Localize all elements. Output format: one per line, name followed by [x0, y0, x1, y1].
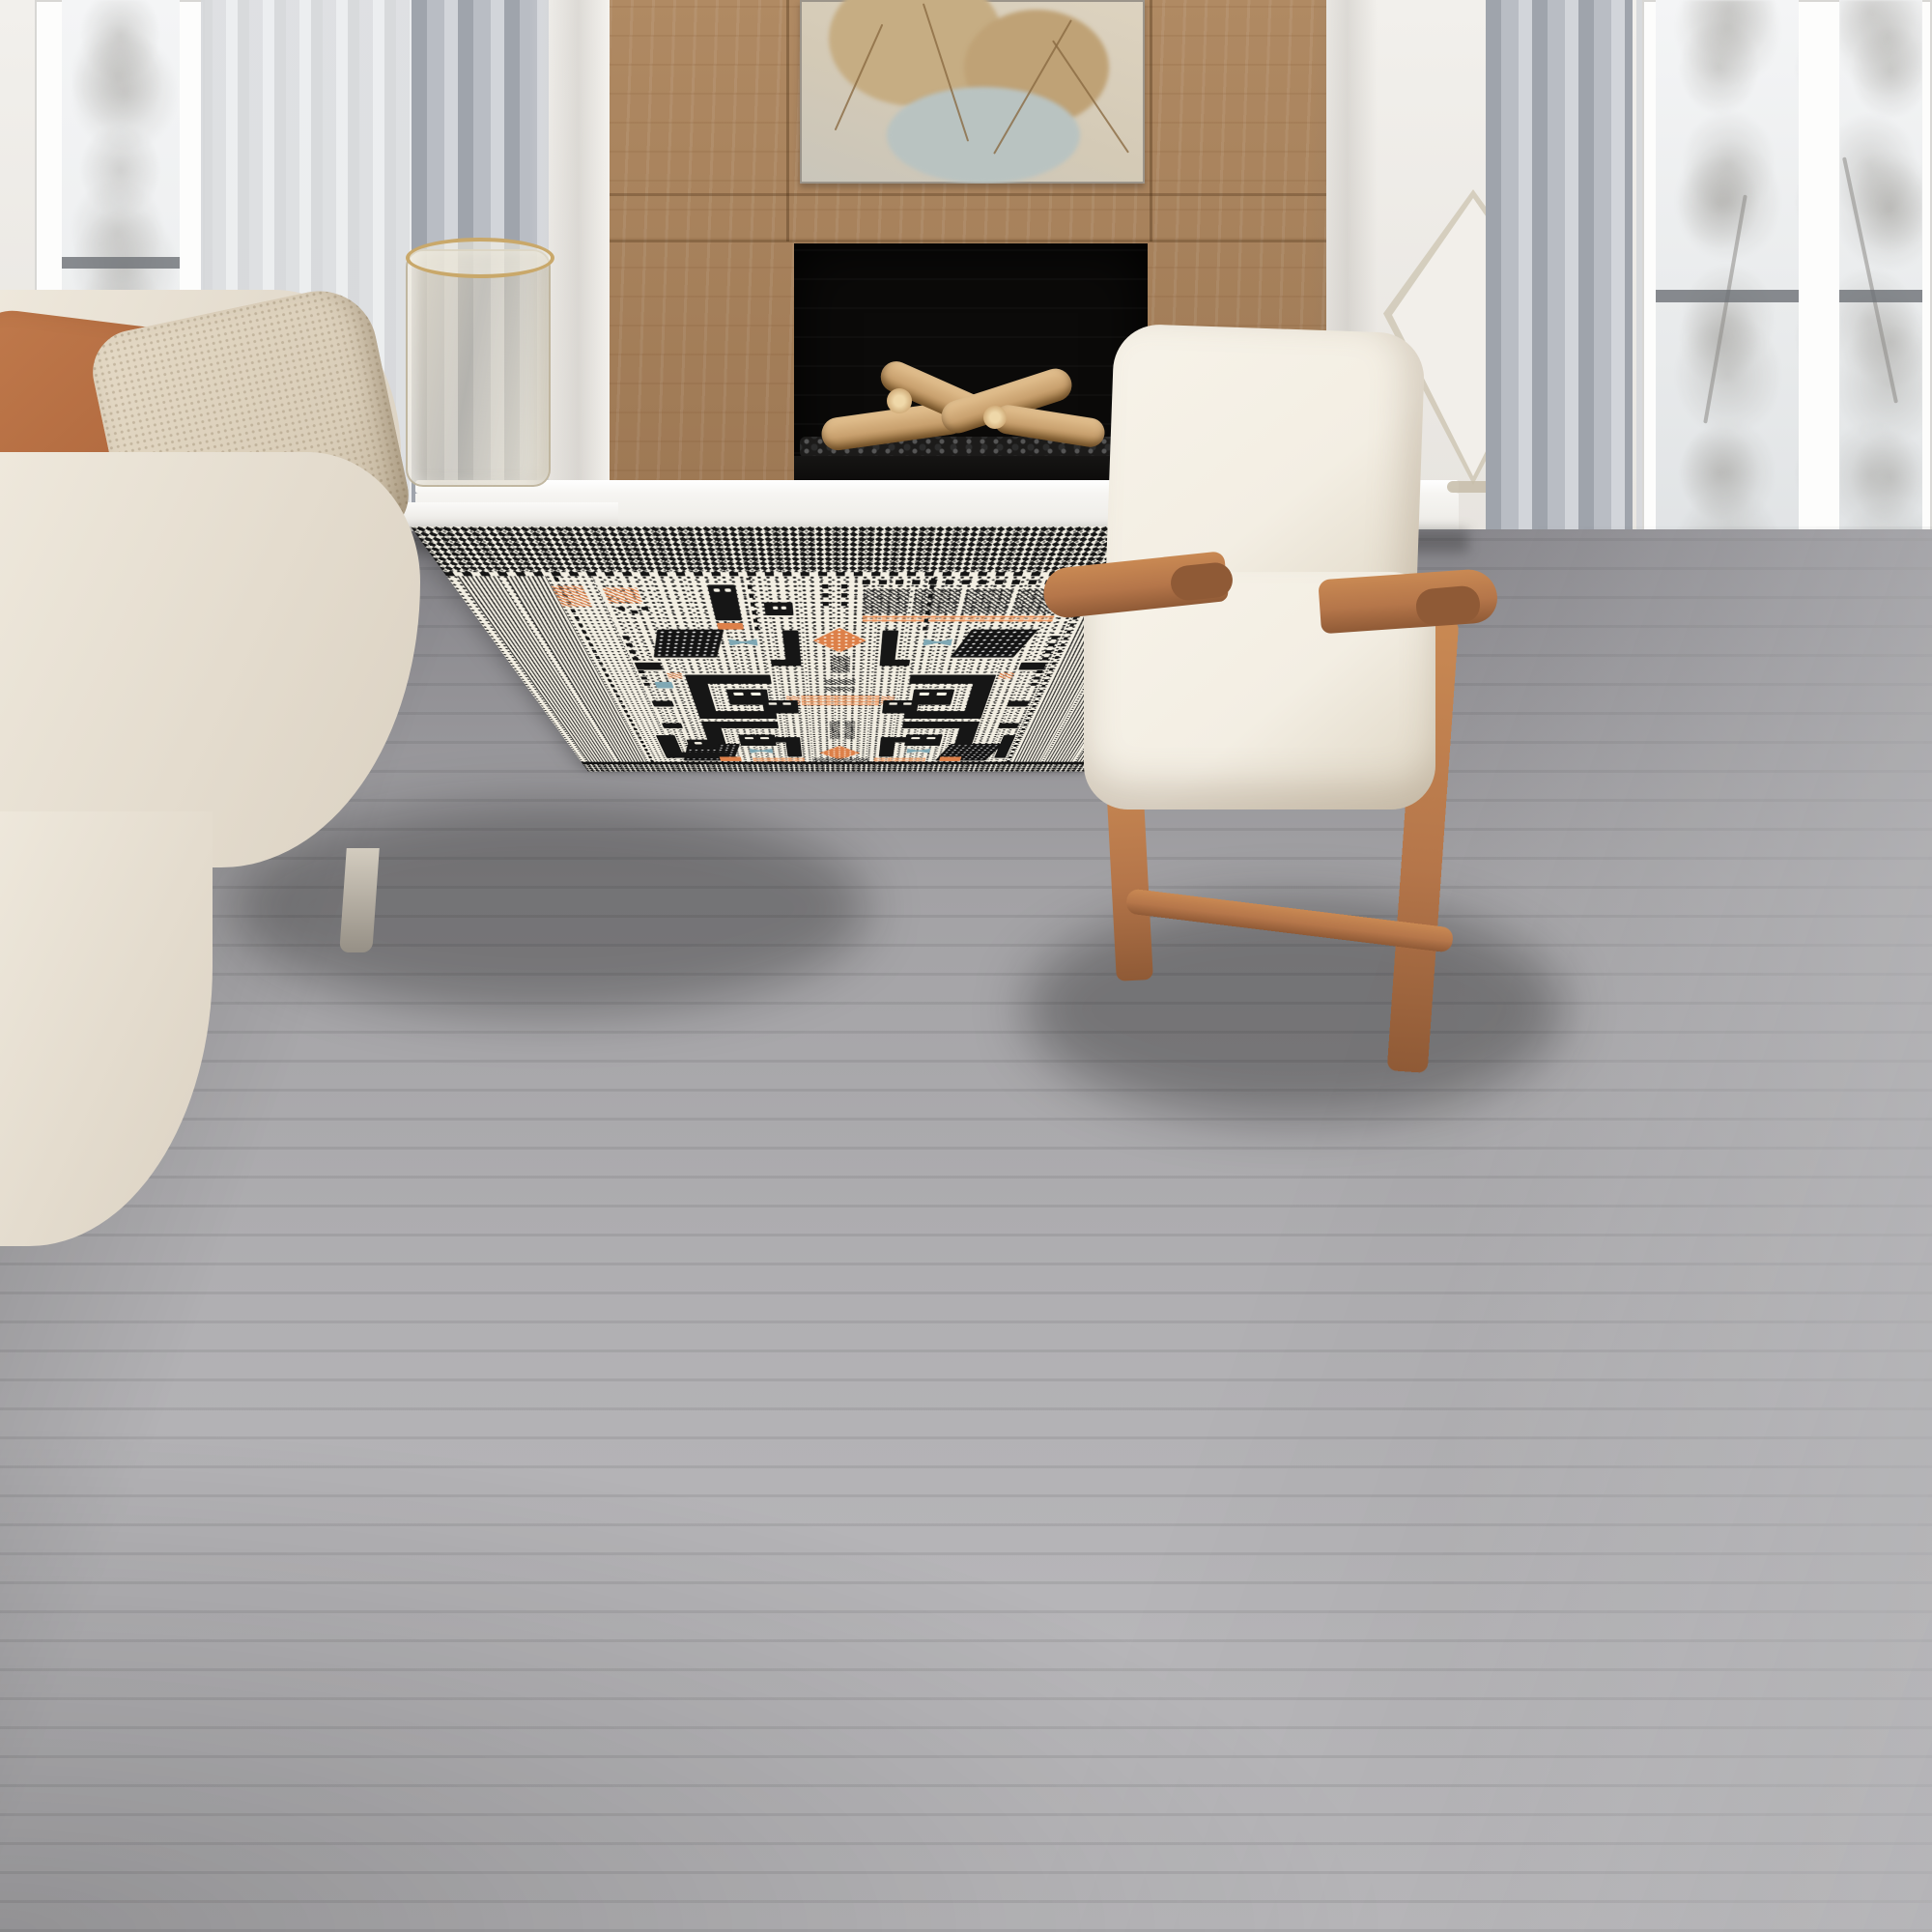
rug-motif-rect — [707, 584, 742, 620]
rug-motif-rect — [685, 674, 772, 683]
rug-motif-inner — [903, 702, 911, 704]
rug-motif-inner — [920, 693, 930, 696]
wood-seam — [610, 240, 1326, 242]
left-window-sash — [62, 257, 180, 269]
rug-motif-rect — [909, 674, 996, 683]
rug-motif-hatchg — [825, 679, 855, 685]
armrest-handle — [1414, 584, 1481, 627]
rug-motif-hatchg — [961, 588, 1014, 613]
rug-motif-inner — [782, 702, 790, 704]
rug-motif-inner — [936, 693, 947, 696]
rug-motif-inner — [751, 693, 761, 696]
rug-motif-inner — [781, 607, 786, 610]
rug-motif-inner — [745, 737, 753, 739]
rug-motif-hatcho — [998, 672, 1014, 678]
rug-motif-dashv — [746, 578, 759, 630]
rug-motif-rect — [687, 740, 720, 750]
rug-motif-rect — [719, 722, 779, 728]
rug-motif-rect — [662, 723, 683, 727]
rug-motif-waveo — [863, 615, 1055, 622]
rug-motif-hatchg — [831, 656, 850, 672]
rug-motif-rect — [617, 607, 625, 611]
rug-motif-inner — [911, 737, 920, 739]
rug-motif-diamb — [654, 630, 724, 658]
rug-motif-inner — [926, 737, 935, 739]
wood-seam — [610, 193, 1326, 196]
rug-motif-rect — [631, 611, 639, 614]
right-window-sash — [1839, 290, 1922, 302]
rug-motif-hatchg — [912, 588, 962, 613]
glass-hurricane-vase — [406, 249, 551, 487]
rug-motif-hatchg — [863, 588, 910, 613]
rug-motif-hatcho — [667, 672, 683, 678]
rug-motif-rect — [774, 737, 785, 742]
art-blob-blue — [887, 87, 1080, 184]
right-window-sash — [1656, 290, 1799, 302]
rug-motif-bow — [750, 749, 774, 753]
rug-motif-inner — [733, 693, 744, 696]
rug-motif-bow — [728, 639, 757, 645]
log-end — [983, 406, 1007, 429]
rug-motif-rect — [882, 700, 919, 714]
rug-motif-rect — [879, 737, 896, 756]
rug-motif-rect — [880, 660, 911, 666]
firebox-plinth — [794, 456, 1148, 483]
rug-motif-bow — [923, 639, 952, 645]
wood-seam — [786, 0, 789, 241]
rug-motif-rusto — [939, 756, 961, 761]
log-end — [887, 388, 912, 413]
abstract-map-artwork — [800, 0, 1145, 184]
rug-motif-inner — [890, 702, 897, 704]
rug-motif-inner — [760, 737, 769, 739]
rug-motif-rusto — [717, 623, 744, 630]
rug-motif-bow — [907, 749, 931, 753]
rug-motif-dashv — [822, 580, 829, 606]
rug-motif-diamb — [951, 630, 1039, 658]
living-room-photo — [0, 0, 1932, 1932]
rug-motif-diamo — [812, 628, 867, 652]
rug-motif-rect — [762, 700, 799, 714]
firebox — [794, 243, 1148, 483]
rug-motif-hatcho — [602, 587, 642, 603]
wall-crease-left — [541, 0, 609, 541]
rug-motif-inner — [769, 702, 777, 704]
rug-motif-rect — [771, 660, 802, 666]
rug-motif-rect — [902, 722, 962, 728]
rug-motif-rect — [895, 737, 907, 742]
rug-motif-rect — [738, 735, 777, 746]
rug-motif-inner — [694, 742, 702, 744]
vase-gold-rim — [406, 238, 554, 278]
rug-motif-dashv — [841, 580, 847, 606]
rug-motif-rect — [785, 737, 803, 756]
rug-motif-rect — [904, 735, 943, 746]
wood-seam — [1150, 0, 1152, 241]
rug-motif-inner — [724, 588, 731, 591]
rug-motif-hatchg — [830, 721, 840, 739]
rug-motif-rusto — [720, 756, 742, 761]
rug-motif-hatchg — [826, 687, 856, 691]
rug-motif-inner — [772, 607, 778, 610]
rug-motif-inner — [714, 588, 721, 591]
rug-motif-rect — [640, 607, 648, 611]
rug-motif-rect — [651, 700, 674, 706]
sofa-shadow — [232, 802, 869, 1014]
rug-bottom-houndstooth-band — [582, 764, 1097, 772]
rug-motif-hatchg — [844, 721, 855, 739]
rug-motif-rect — [764, 603, 794, 616]
rug-motif-waveo — [801, 696, 880, 705]
rug-motif-rect — [1007, 700, 1030, 706]
rug-motif-teal — [654, 682, 673, 689]
rug-motif-rect — [998, 723, 1019, 727]
